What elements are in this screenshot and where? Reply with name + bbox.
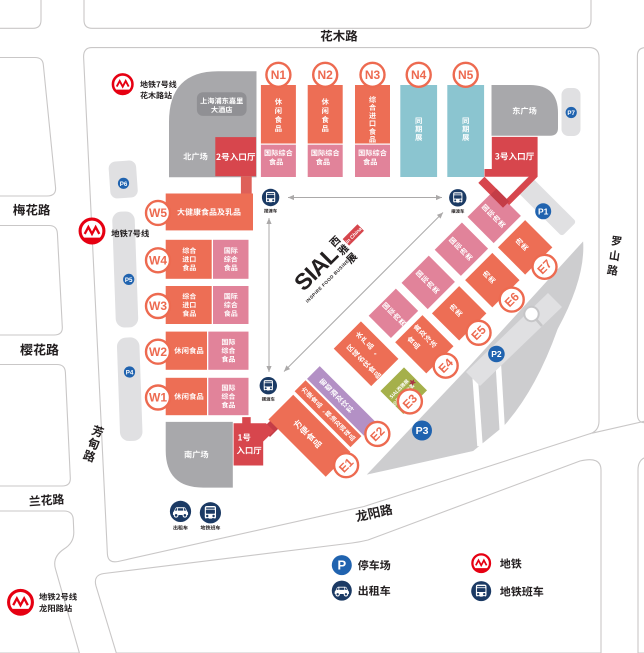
svg-text:N4: N4 — [411, 68, 427, 82]
svg-text:N2: N2 — [318, 68, 334, 82]
svg-text:P1: P1 — [538, 206, 549, 216]
svg-text:P5: P5 — [125, 277, 133, 284]
svg-text:N3: N3 — [365, 68, 381, 82]
svg-text:P4: P4 — [126, 370, 134, 377]
svg-text:N5: N5 — [458, 68, 474, 82]
svg-text:P6: P6 — [120, 181, 128, 188]
svg-text:W2: W2 — [149, 345, 167, 359]
svg-text:W1: W1 — [149, 391, 167, 405]
svg-text:P: P — [337, 558, 346, 573]
svg-text:N1: N1 — [271, 68, 287, 82]
svg-text:P3: P3 — [416, 425, 429, 437]
svg-text:W3: W3 — [149, 299, 167, 313]
svg-text:W5: W5 — [149, 206, 167, 220]
svg-text:P7: P7 — [567, 110, 575, 117]
svg-text:P2: P2 — [491, 349, 502, 359]
svg-text:W4: W4 — [149, 254, 167, 268]
